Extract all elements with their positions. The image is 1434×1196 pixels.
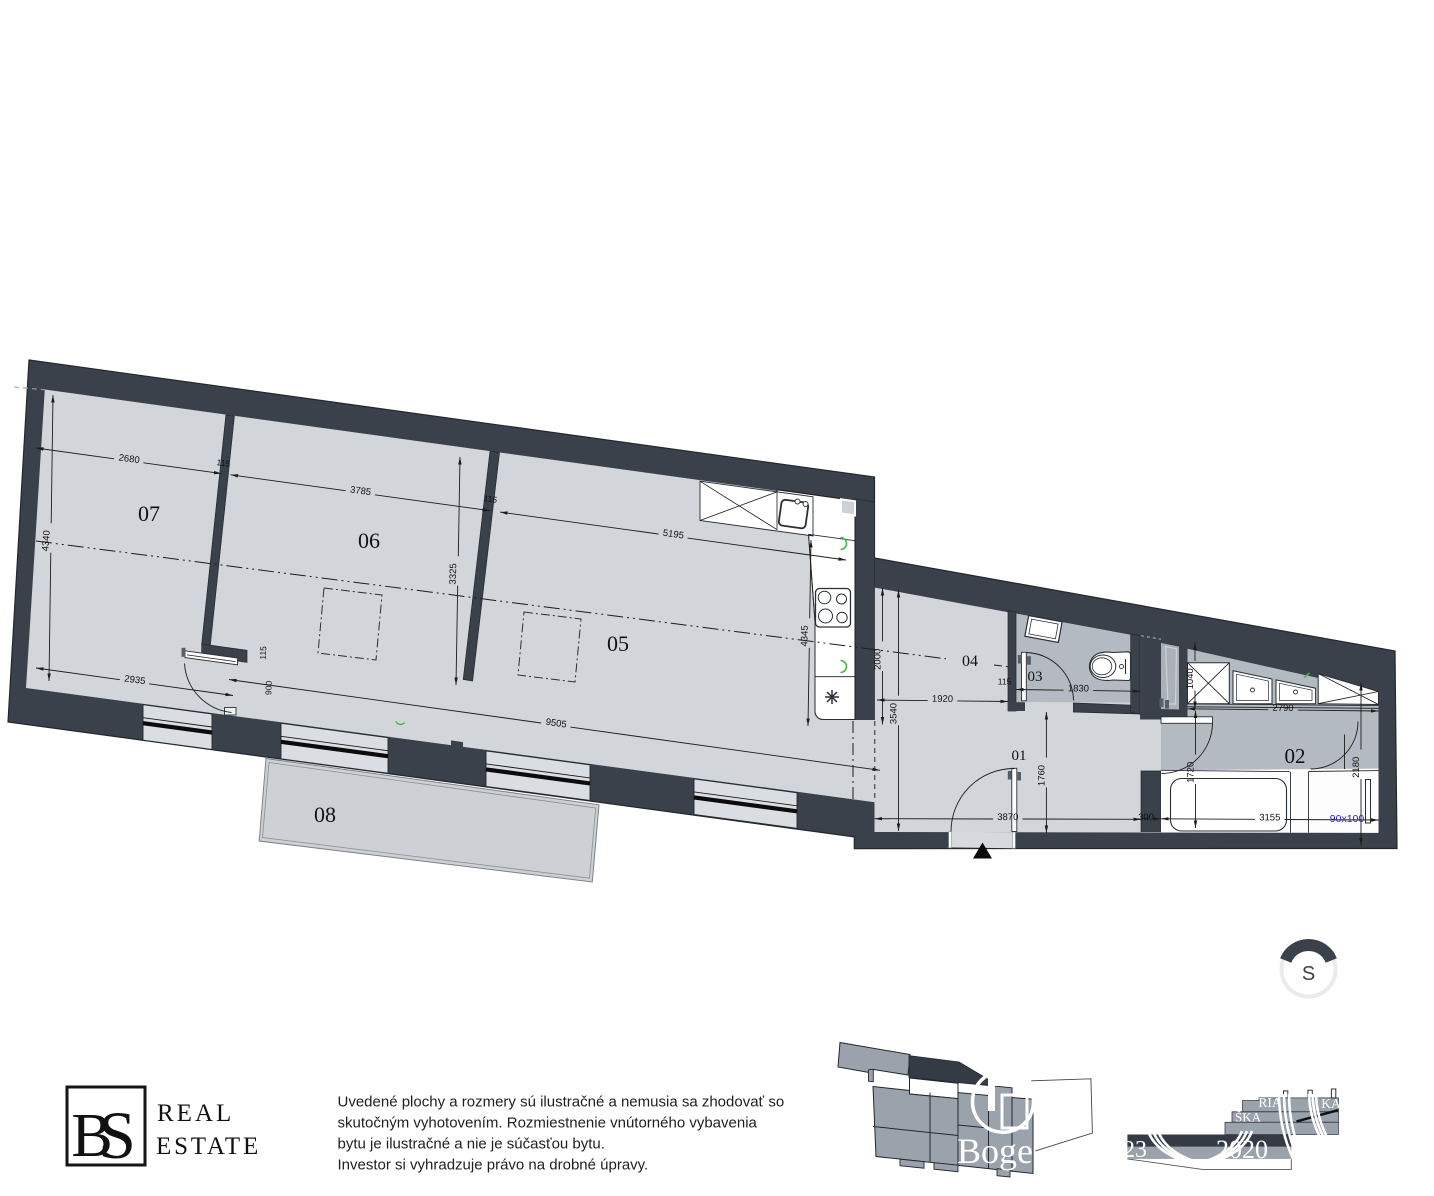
svg-text:115: 115 bbox=[483, 493, 498, 505]
svg-text:Uvedené plochy a rozmery sú il: Uvedené plochy a rozmery sú ilustračné a… bbox=[338, 1094, 785, 1111]
svg-text:115: 115 bbox=[998, 677, 1012, 687]
svg-text:3870: 3870 bbox=[997, 812, 1018, 823]
svg-text:01: 01 bbox=[1012, 748, 1027, 764]
svg-text:3155: 3155 bbox=[1259, 812, 1280, 823]
svg-text:4345: 4345 bbox=[799, 625, 811, 646]
svg-text:05: 05 bbox=[607, 631, 629, 656]
svg-text:900: 900 bbox=[263, 680, 273, 695]
svg-text:3540: 3540 bbox=[889, 703, 900, 724]
svg-text:S: S bbox=[98, 1097, 136, 1173]
svg-text:115: 115 bbox=[258, 646, 268, 660]
svg-text:3325: 3325 bbox=[448, 563, 460, 585]
svg-text:1040: 1040 bbox=[1185, 668, 1196, 689]
svg-text:1720: 1720 bbox=[1186, 762, 1197, 783]
svg-text:1830: 1830 bbox=[1068, 683, 1089, 694]
svg-text:RIA: RIA bbox=[1258, 1095, 1282, 1110]
svg-text:2180: 2180 bbox=[1351, 757, 1362, 778]
svg-text:06: 06 bbox=[358, 528, 380, 553]
svg-text:07: 07 bbox=[138, 501, 160, 526]
svg-text:90x100: 90x100 bbox=[1330, 813, 1365, 825]
svg-text:2000: 2000 bbox=[873, 649, 884, 670]
svg-text:bytu je ilustračné a nie je sú: bytu je ilustračné a nie je súčasťou byt… bbox=[338, 1136, 605, 1153]
svg-text:03: 03 bbox=[1028, 669, 1043, 685]
svg-text:115: 115 bbox=[216, 457, 231, 469]
svg-text:skutočným vyhotovením. Rozmies: skutočným vyhotovením. Rozmiestnenie vnú… bbox=[338, 1115, 758, 1132]
svg-text:2020: 2020 bbox=[1216, 1135, 1268, 1164]
svg-text:KA: KA bbox=[1321, 1096, 1341, 1111]
svg-text:08: 08 bbox=[314, 802, 336, 827]
svg-text:4340: 4340 bbox=[40, 530, 52, 552]
svg-text:23: 23 bbox=[1123, 1137, 1147, 1163]
svg-text:02: 02 bbox=[1285, 744, 1306, 768]
svg-text:1760: 1760 bbox=[1036, 765, 1047, 786]
svg-text:ESTATE: ESTATE bbox=[156, 1133, 261, 1160]
svg-text:ŠKA: ŠKA bbox=[1235, 1110, 1262, 1125]
svg-text:300: 300 bbox=[1138, 812, 1154, 823]
svg-text:S: S bbox=[1302, 963, 1315, 985]
svg-text:2790: 2790 bbox=[1272, 703, 1293, 714]
svg-text:Investor si vyhradzuje právo n: Investor si vyhradzuje právo na drobné ú… bbox=[338, 1157, 649, 1174]
svg-text:1920: 1920 bbox=[932, 694, 953, 705]
svg-text:REAL: REAL bbox=[157, 1100, 234, 1127]
svg-text:Boge: Boge bbox=[957, 1131, 1033, 1171]
svg-text:04: 04 bbox=[962, 653, 978, 670]
